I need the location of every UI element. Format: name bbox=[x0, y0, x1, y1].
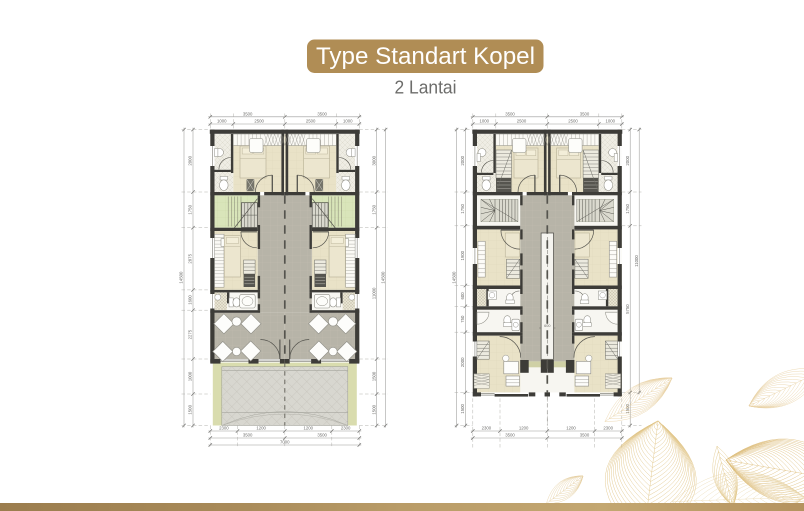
svg-text:1500: 1500 bbox=[188, 404, 193, 414]
svg-text:1200: 1200 bbox=[304, 426, 314, 431]
svg-text:1200: 1200 bbox=[256, 426, 266, 431]
svg-text:1750: 1750 bbox=[371, 204, 376, 214]
svg-text:1000: 1000 bbox=[217, 119, 227, 124]
svg-text:1500: 1500 bbox=[371, 371, 376, 381]
svg-text:3500: 3500 bbox=[505, 433, 515, 438]
svg-text:2300: 2300 bbox=[341, 426, 351, 431]
svg-text:1000: 1000 bbox=[480, 119, 490, 124]
svg-text:3000: 3000 bbox=[371, 155, 376, 165]
svg-text:14500: 14500 bbox=[380, 271, 385, 284]
svg-text:2000: 2000 bbox=[625, 155, 630, 165]
svg-text:3500: 3500 bbox=[317, 433, 327, 438]
svg-text:3500: 3500 bbox=[243, 112, 253, 117]
svg-text:2300: 2300 bbox=[219, 426, 229, 431]
svg-text:1500: 1500 bbox=[460, 404, 465, 414]
svg-text:3500: 3500 bbox=[580, 112, 590, 117]
svg-text:2500: 2500 bbox=[306, 119, 316, 124]
svg-text:14500: 14500 bbox=[451, 271, 456, 284]
svg-text:3500: 3500 bbox=[580, 433, 590, 438]
svg-text:1900: 1900 bbox=[460, 250, 465, 260]
svg-text:1600: 1600 bbox=[188, 295, 193, 305]
svg-text:14500: 14500 bbox=[179, 271, 184, 284]
svg-text:2300: 2300 bbox=[482, 426, 492, 431]
svg-text:1000: 1000 bbox=[188, 371, 193, 381]
svg-text:600: 600 bbox=[460, 292, 465, 300]
svg-text:750: 750 bbox=[460, 315, 465, 323]
svg-text:11000: 11000 bbox=[634, 255, 639, 267]
svg-text:2000: 2000 bbox=[188, 155, 193, 165]
svg-text:2 Lantai: 2 Lantai bbox=[395, 78, 457, 98]
svg-text:2000: 2000 bbox=[460, 357, 465, 367]
svg-text:1750: 1750 bbox=[625, 204, 630, 214]
svg-text:5750: 5750 bbox=[625, 304, 630, 314]
svg-text:1000: 1000 bbox=[606, 119, 616, 124]
svg-text:3500: 3500 bbox=[505, 112, 515, 117]
svg-text:1200: 1200 bbox=[519, 426, 529, 431]
svg-text:3500: 3500 bbox=[317, 112, 327, 117]
svg-text:1750: 1750 bbox=[188, 204, 193, 214]
svg-text:2500: 2500 bbox=[254, 119, 264, 124]
svg-text:2275: 2275 bbox=[188, 329, 193, 339]
svg-text:3500: 3500 bbox=[243, 433, 253, 438]
svg-text:Type Standart Kopel: Type Standart Kopel bbox=[316, 43, 535, 70]
svg-text:2300: 2300 bbox=[603, 426, 613, 431]
svg-text:1500: 1500 bbox=[371, 404, 376, 414]
svg-text:1750: 1750 bbox=[460, 204, 465, 214]
svg-text:1200: 1200 bbox=[566, 426, 576, 431]
svg-text:7000: 7000 bbox=[280, 440, 290, 445]
svg-text:11000: 11000 bbox=[371, 287, 376, 299]
svg-text:2500: 2500 bbox=[517, 119, 527, 124]
svg-text:2875: 2875 bbox=[188, 253, 193, 263]
svg-text:1000: 1000 bbox=[343, 119, 353, 124]
svg-text:2000: 2000 bbox=[460, 155, 465, 165]
svg-text:600: 600 bbox=[544, 324, 550, 328]
svg-text:2500: 2500 bbox=[568, 119, 578, 124]
